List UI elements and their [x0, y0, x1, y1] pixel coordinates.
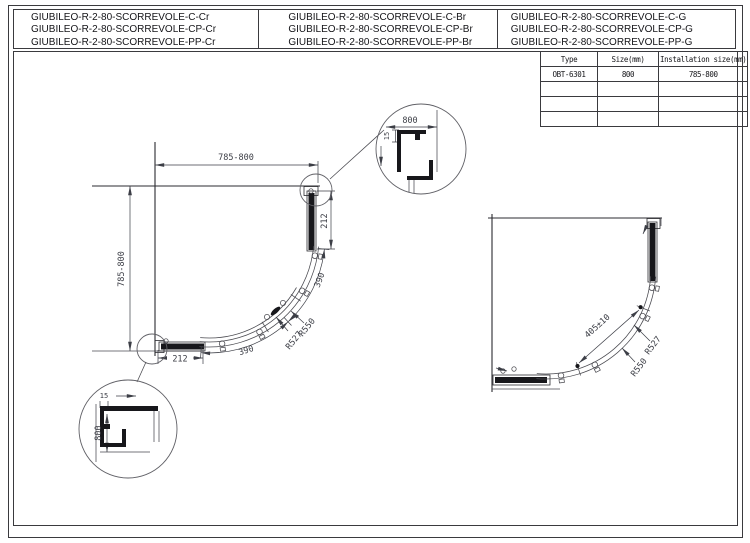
profile-section — [104, 424, 110, 429]
door-edge-knob — [639, 305, 643, 309]
left-top-dimension: 785-800 — [218, 153, 254, 163]
profile-section — [429, 160, 433, 180]
radius-outer-label: R550 — [629, 357, 649, 379]
drawing-sheet: { "colors": {"line": "#2b2b30", "dim_tex… — [0, 0, 750, 543]
open-door-panel — [493, 367, 550, 385]
leader-arrow — [496, 368, 507, 371]
right-wall-profile — [304, 187, 318, 252]
roller-glyph — [649, 285, 655, 291]
right-wall-profile — [643, 219, 660, 283]
left-side-dimension: 785-800 — [117, 251, 127, 287]
roller-glyph — [640, 313, 646, 319]
opening-dimension: 405±10 — [583, 313, 613, 341]
roller-glyph — [219, 341, 225, 347]
inner-glass-arc — [200, 246, 314, 342]
roller-glyph — [592, 362, 598, 368]
leader-arrow — [643, 225, 647, 234]
detail-view-top: 800 15 — [376, 104, 466, 197]
door-edge-knob — [575, 364, 579, 368]
profile-section — [415, 134, 420, 140]
profile-section — [122, 429, 126, 443]
detail-bottom-offset-dimension: 15 — [100, 392, 108, 400]
roller-glyph — [512, 367, 516, 371]
roller-bracket — [559, 379, 564, 383]
right-profile-dimension: 212 — [320, 213, 330, 228]
roller-bracket — [220, 347, 225, 351]
roller-bracket — [655, 286, 659, 292]
radius-leader — [622, 348, 635, 362]
handle-knob — [264, 314, 269, 319]
right-plan-view: 405±10 R527 R550 — [488, 214, 664, 392]
roller-glyph — [312, 253, 318, 259]
detail-top-offset-dimension: 15 — [383, 132, 391, 140]
profile-section — [104, 443, 126, 447]
roller-bracket — [318, 254, 322, 260]
detail-circle-top — [376, 104, 466, 194]
arc-lower-dimension: 390 — [238, 344, 256, 358]
detail-top-width-dimension: 800 — [402, 116, 417, 126]
profile-bar — [650, 223, 656, 281]
door-rollers — [219, 253, 322, 351]
bottom-wall-profile — [155, 339, 205, 353]
detail-bottom-height-dimension: 800 — [94, 425, 104, 440]
left-plan-view: 785-800 785-800 212 212 — [92, 130, 384, 382]
radius-inner-label: R527 — [643, 335, 663, 357]
roller-glyph — [257, 329, 263, 335]
arc-upper-dimension: 390 — [313, 271, 328, 289]
profile-bar — [161, 344, 204, 350]
bottom-profile-dimension: 212 — [172, 355, 187, 365]
door-bar — [495, 377, 547, 383]
profile-section — [397, 134, 401, 172]
handle-knob — [280, 300, 285, 305]
roller-glyph — [299, 288, 305, 294]
radius-leader — [634, 325, 650, 341]
roller-glyph — [558, 373, 564, 379]
detail-view-bottom: 800 15 — [79, 380, 177, 478]
cad-drawing-canvas: 785-800 785-800 212 212 — [0, 0, 750, 543]
profile-bar — [309, 193, 315, 250]
profile-section — [397, 130, 426, 134]
glass-section-lines — [409, 180, 414, 197]
callout-leader — [137, 362, 146, 382]
profile-section — [100, 406, 158, 411]
